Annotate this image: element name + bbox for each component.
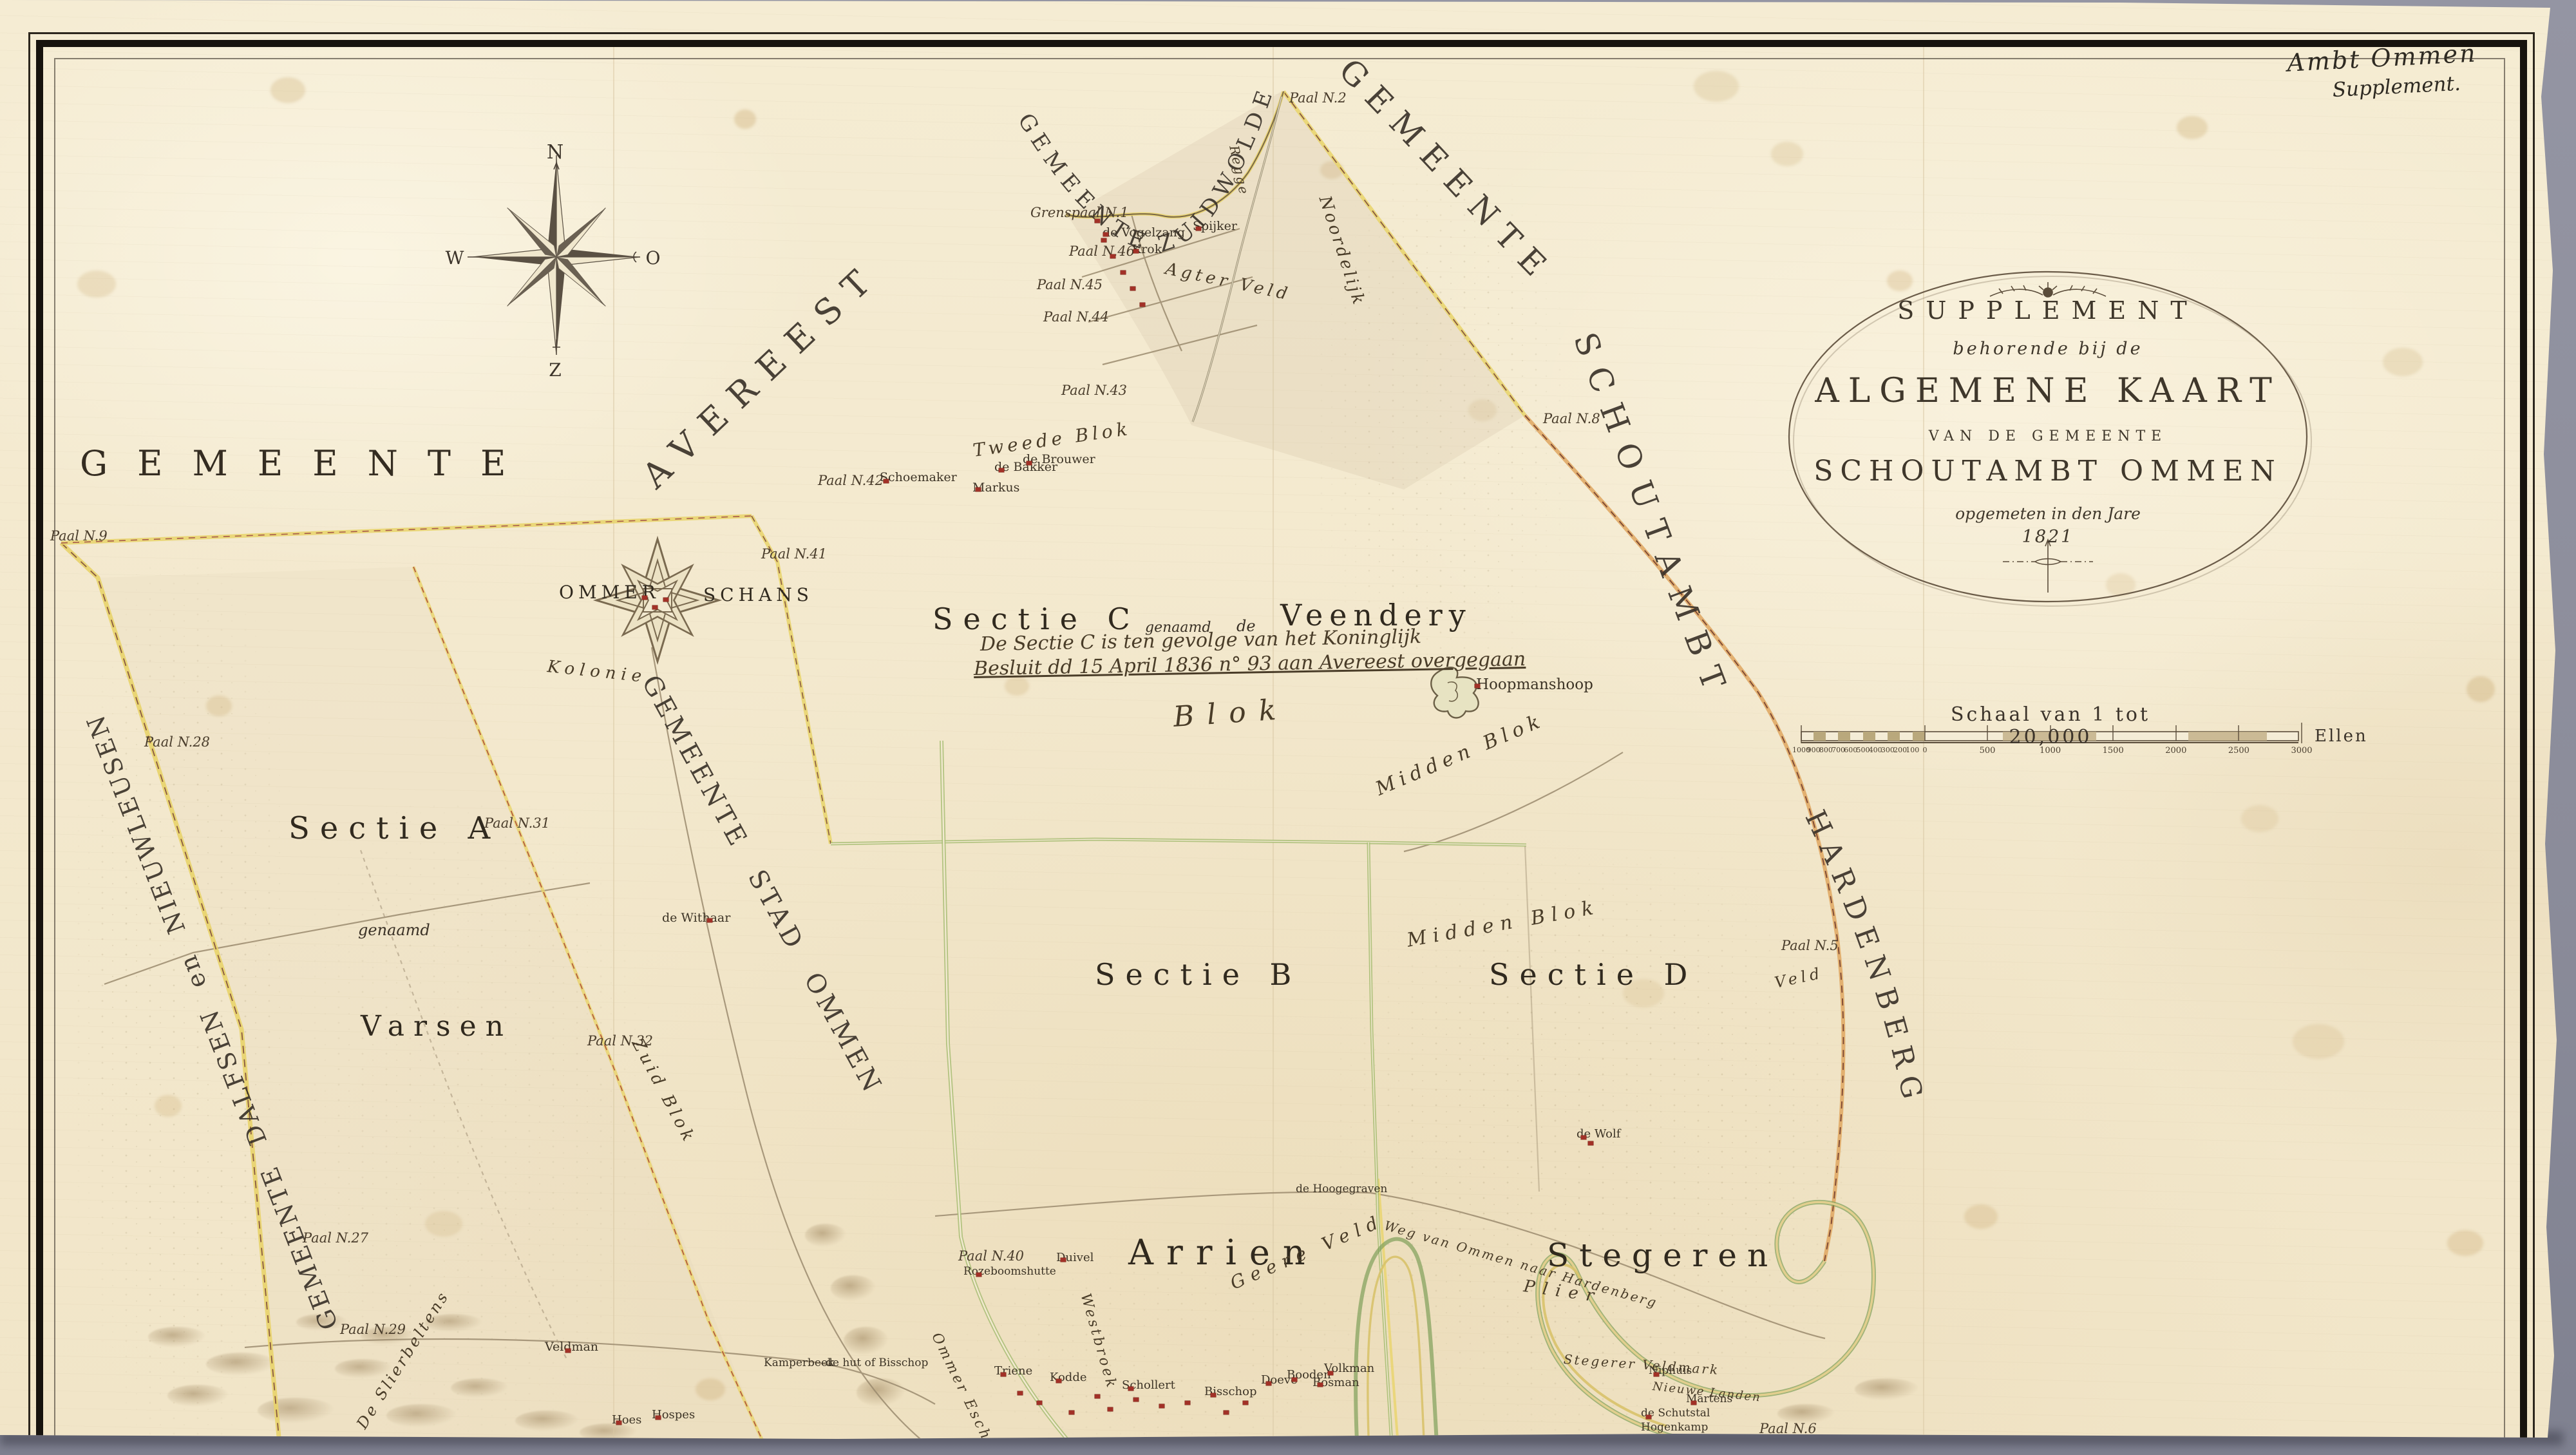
map-label: Veldman (545, 1341, 598, 1353)
building-symbol (707, 918, 712, 922)
scale-tick-label: 500 (1857, 746, 1870, 754)
scale-tick-label: 0 (1923, 746, 1927, 754)
scale-tick-label: 700 (1832, 746, 1845, 754)
map-label: Schoemaker (880, 471, 957, 484)
map-label: Grenspaal N.1 (1030, 206, 1129, 220)
building-symbol (565, 1349, 571, 1353)
map-label: de Hoogegraven (1296, 1184, 1387, 1195)
cartouche-title: SUPPLEMENT (1790, 296, 2306, 325)
map-label: Hoopmanshoop (1476, 678, 1593, 692)
scale-tick-label: 800 (1819, 746, 1833, 754)
map-label: Paal N.9 (50, 529, 108, 543)
building-symbol (1140, 303, 1145, 307)
map-label: Paal N.27 (303, 1232, 368, 1245)
scale-title: Schaal van 1 tot 20,000 (1922, 703, 2179, 748)
scale-tick-label: 900 (1807, 746, 1821, 754)
building-symbol (1196, 227, 1201, 231)
scale-tick-label: 1500 (2103, 746, 2124, 756)
scale-tick-label: 200 (1893, 746, 1907, 754)
map-label: de Brouwer (1023, 453, 1095, 466)
map-label: de (1236, 618, 1256, 634)
building-symbol (1581, 1136, 1586, 1139)
map-label: Sectie A (289, 813, 500, 844)
building-symbol (1691, 1401, 1696, 1405)
building-symbol (1001, 1373, 1006, 1376)
map-label: Paal N.2 (1289, 91, 1347, 105)
building-symbol (1121, 271, 1126, 274)
cartouche-main-title: ALGEMENE KAART (1790, 372, 2306, 410)
building-symbol (1654, 1373, 1659, 1376)
map-label: Paal N.31 (484, 817, 550, 830)
scale-tick-label: 2000 (2165, 746, 2186, 756)
cartouche-surveyed-text: opgemeten in den Jare (1790, 504, 2306, 523)
building-symbol (616, 1421, 621, 1425)
building-symbol (1475, 684, 1480, 688)
building-symbol (1056, 1379, 1061, 1383)
map-label: Kodde (1050, 1372, 1087, 1384)
map-label: Sectie C (933, 604, 1141, 634)
map-label: Paal N.28 (144, 736, 210, 749)
map-label: de Vogelzang (1103, 227, 1185, 239)
building-symbol (1103, 233, 1108, 236)
building-symbol (1108, 1407, 1113, 1411)
scale-tick-label: 100 (1906, 746, 1919, 754)
scale-tick-label: 3000 (2291, 746, 2312, 756)
border-label-gemeente-left: GEMEENTE (80, 443, 535, 484)
scale-tick-label: 600 (1844, 746, 1857, 754)
scale-unit-label: Ellen (2315, 727, 2368, 746)
map-label: genaamd (1145, 621, 1211, 635)
photo-backdrop: N W O Z (0, 0, 2576, 1455)
building-symbol (1110, 254, 1115, 258)
map-label: genaamd (358, 922, 430, 938)
map-label: Stegeren (1547, 1239, 1778, 1271)
building-symbol (1588, 1141, 1593, 1145)
map-label: Paal N.46 (1069, 245, 1135, 258)
building-symbol (1095, 219, 1100, 223)
building-symbol (652, 605, 658, 609)
building-symbol (1133, 249, 1139, 253)
building-symbol (1318, 1383, 1323, 1387)
title-cartouche: SUPPLEMENT behorende bij de ALGEMENE KAA… (1790, 278, 2306, 547)
map-label: Paal N.42 (818, 474, 884, 488)
building-symbol (1185, 1401, 1190, 1405)
building-symbol (1211, 1393, 1216, 1397)
cartouche-subtitle2: VAN DE GEMEENTE (1790, 428, 2306, 444)
map-label: Hogenkamp (1641, 1422, 1708, 1433)
building-symbol (1037, 1401, 1042, 1405)
building-symbol (1243, 1401, 1248, 1405)
map-label: Paal N.45 (1037, 278, 1103, 292)
map-label: Paal N.44 (1043, 310, 1109, 324)
map-label: Triene (994, 1365, 1032, 1377)
fort-label-schans: SCHANS (703, 586, 813, 604)
building-symbol (1328, 1371, 1333, 1375)
map-label: de Withaar (662, 912, 730, 924)
map-label: Paal N.32 (587, 1034, 653, 1048)
map-label: Paal N.6 (1759, 1422, 1817, 1436)
scale-tick-label: 2500 (2228, 746, 2249, 756)
map-label: Sectie D (1489, 960, 1698, 989)
map-label: Paal N.29 (340, 1323, 406, 1336)
building-symbol (656, 1416, 661, 1420)
building-symbol (1292, 1378, 1297, 1382)
map-sheet: N W O Z (0, 0, 2558, 1441)
building-symbol (1159, 1404, 1164, 1408)
map-label: Paal N.8 (1543, 412, 1600, 426)
building-symbol (1101, 238, 1106, 242)
building-symbol (884, 479, 889, 483)
cartouche-subtitle1: behorende bij de (1790, 339, 2306, 359)
building-symbol (1646, 1415, 1651, 1419)
building-symbol (1130, 287, 1135, 290)
building-symbol (976, 1273, 981, 1277)
scale-tick-label: 500 (1980, 746, 1996, 756)
map-label: Veendery (1280, 600, 1472, 630)
scale-tick-label: 400 (1869, 746, 1882, 754)
map-label: Sectie B (1095, 960, 1302, 989)
building-symbol (1027, 461, 1032, 465)
building-symbol (1224, 1411, 1229, 1414)
map-label: Varsen (361, 1013, 513, 1041)
building-symbol (976, 488, 981, 491)
building-symbol (663, 598, 668, 602)
building-symbol (1266, 1382, 1271, 1385)
map-label: Paal N.43 (1061, 384, 1127, 397)
cartouche-municipality: SCHOUTAMBT OMMEN (1790, 455, 2306, 488)
building-symbol (642, 596, 647, 600)
map-label: Paal N.5 (1781, 939, 1839, 953)
building-symbol (1061, 1258, 1066, 1262)
building-symbol (1095, 1394, 1100, 1398)
map-label: de hut of Bisschop (826, 1358, 928, 1369)
map-label: Blok (1172, 696, 1289, 732)
building-symbol (1069, 1411, 1074, 1414)
map-label: Paal N.41 (761, 547, 827, 561)
building-symbol (1128, 1387, 1133, 1391)
cartouche-year: 1821 (1790, 527, 2306, 547)
map-label: Kamperbeek (764, 1358, 834, 1369)
scale-tick-label: 300 (1881, 746, 1895, 754)
building-symbol (999, 468, 1004, 472)
scale-tick-label: 1000 (2040, 746, 2061, 756)
map-label: de Schutstal (1641, 1408, 1710, 1419)
map-label: Paal N.40 (958, 1250, 1024, 1263)
building-symbol (1018, 1391, 1023, 1395)
building-symbol (1133, 1398, 1139, 1402)
